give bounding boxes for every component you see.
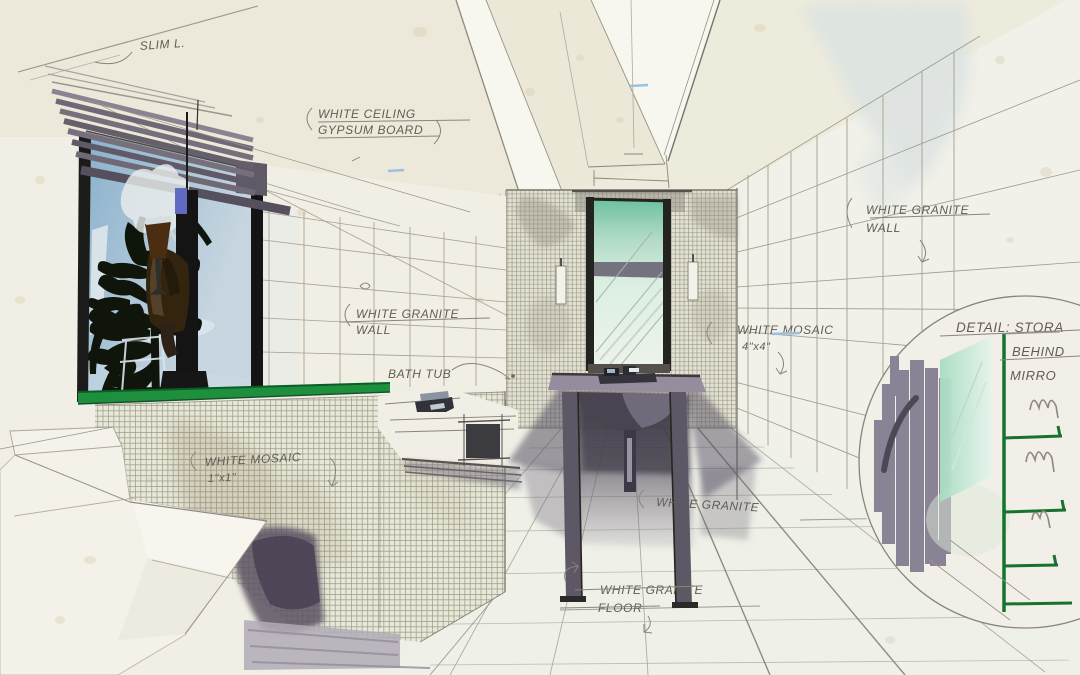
svg-text:GYPSUM BOARD: GYPSUM BOARD	[318, 123, 423, 137]
svg-text:WHITE GRANITE: WHITE GRANITE	[600, 583, 704, 597]
svg-text:WHITE MOSAIC: WHITE MOSAIC	[737, 323, 834, 337]
svg-text:WALL: WALL	[866, 221, 901, 235]
svg-text:FLOOR: FLOOR	[598, 601, 642, 615]
svg-text:1"x1": 1"x1"	[208, 471, 238, 485]
svg-text:WALL: WALL	[356, 323, 391, 337]
svg-text:BATH TUB: BATH TUB	[388, 367, 451, 381]
svg-text:WHITE CEILING: WHITE CEILING	[318, 107, 416, 121]
svg-text:4"x4": 4"x4"	[742, 341, 771, 353]
svg-text:MIRRO: MIRRO	[1010, 368, 1056, 383]
